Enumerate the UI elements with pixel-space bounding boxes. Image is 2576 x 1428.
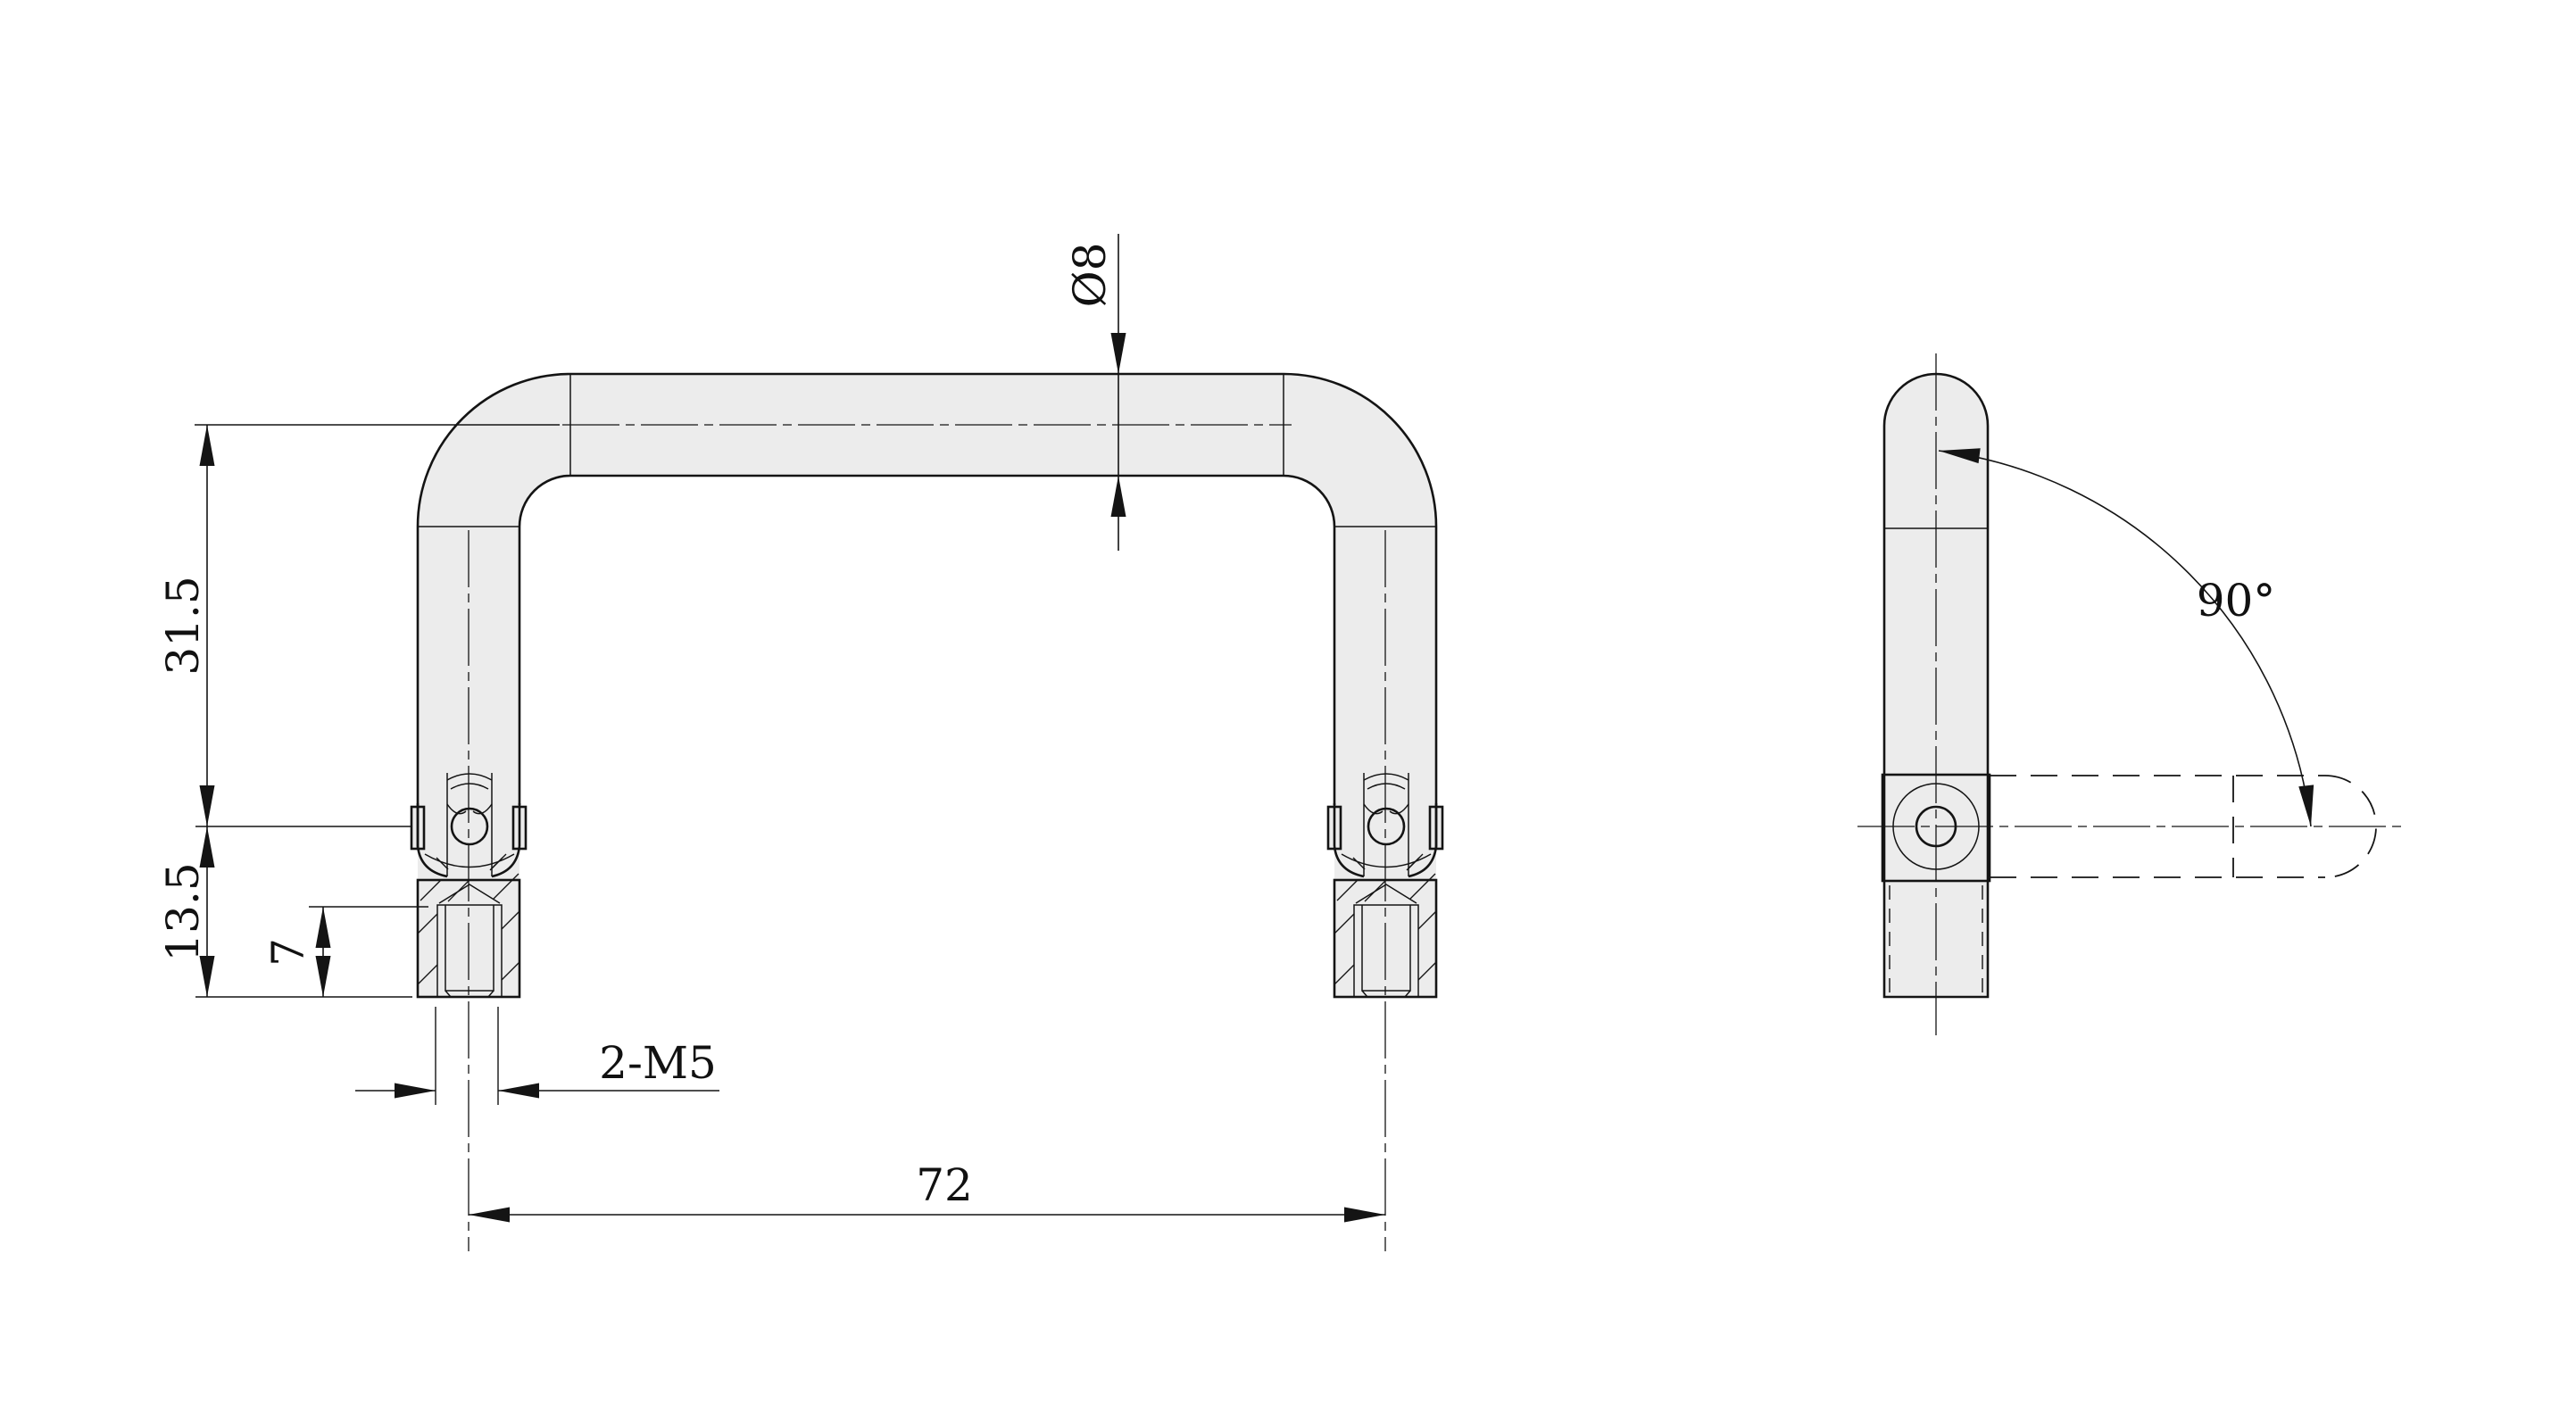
dim-label-mount-spacing: 72 xyxy=(916,1159,973,1211)
dim-label-tube-diameter: Ø8 xyxy=(1064,243,1116,308)
dim-lower-height: 13.5 xyxy=(157,826,209,997)
dim-thread-depth: 7 xyxy=(262,907,323,997)
dim-label-upper-height: 31.5 xyxy=(157,576,209,675)
dim-label-swing-angle: 90° xyxy=(2197,575,2276,627)
drawing-canvas: 31.5 13.5 7 Ø8 2-M5 72 xyxy=(0,0,2576,1428)
dim-label-thread-depth: 7 xyxy=(262,938,314,967)
dim-upper-height: 31.5 xyxy=(157,425,209,826)
dim-mount-spacing: 72 xyxy=(469,1159,1385,1215)
dim-thread-callout: 2-M5 xyxy=(355,1037,719,1091)
drawing-sheet: 31.5 13.5 7 Ø8 2-M5 72 xyxy=(0,0,2576,1428)
front-view xyxy=(411,374,1442,1251)
side-view: 90° xyxy=(1857,353,2406,1035)
dim-swing-angle: 90° xyxy=(1939,451,2311,826)
handle-inner-outline xyxy=(519,476,1334,805)
dim-label-lower-height: 13.5 xyxy=(157,862,209,961)
dim-label-thread-callout: 2-M5 xyxy=(599,1037,717,1089)
